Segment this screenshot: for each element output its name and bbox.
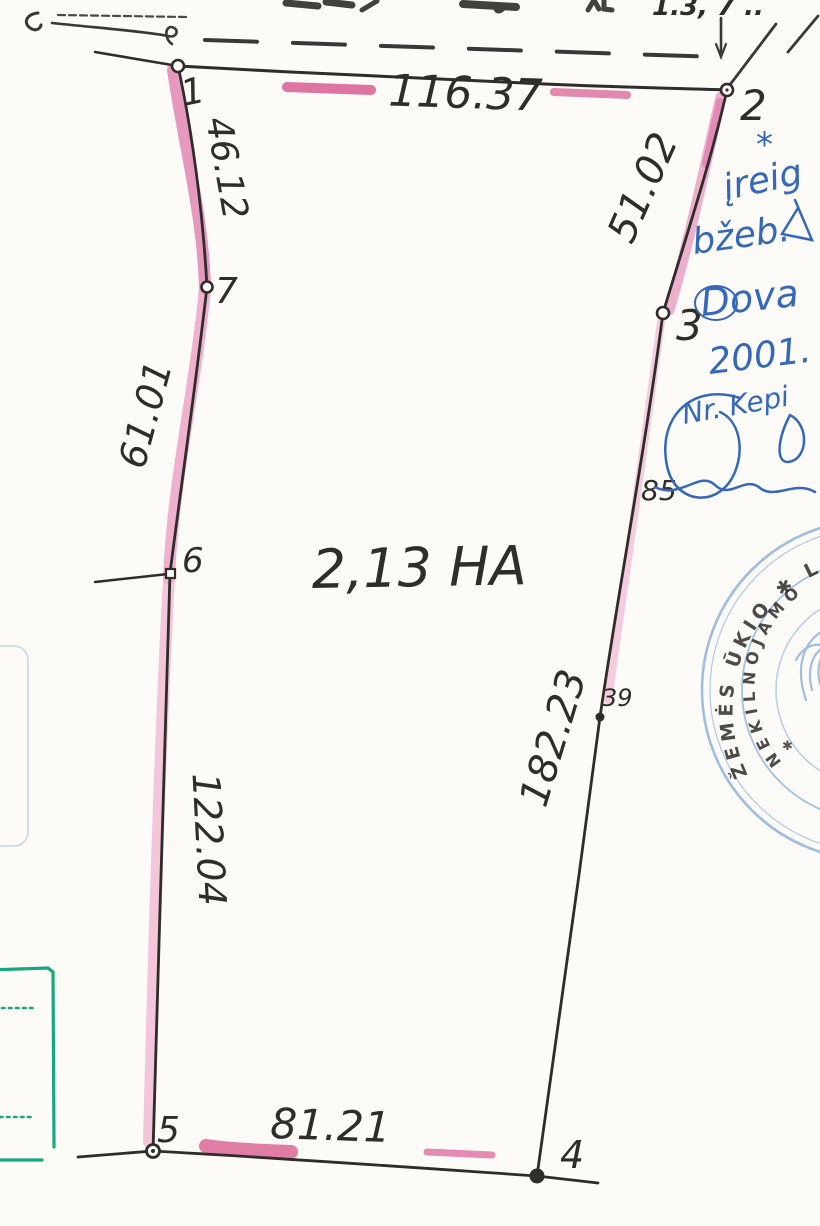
top-fragment-text: 1.3, 7 .. <box>652 0 764 22</box>
edge-6-7 <box>170 287 207 573</box>
vertex-1-marker <box>172 60 184 72</box>
note-line-3: Dova <box>698 271 800 325</box>
plan-drawing: ŽEMĖS ŪKIO ✱ LIETU NEKILNOJAMO ✱ 1.3, 7 … <box>0 0 820 1226</box>
tick-at-vertex-6 <box>95 574 168 582</box>
top-left-marks <box>26 13 186 44</box>
measurement-side-3-4: 182.23 <box>511 665 596 812</box>
vertex-3-marker <box>657 307 669 319</box>
area-label: 2,13 HA <box>311 534 527 601</box>
fragment-stroke-1 <box>286 3 318 6</box>
vertex-4-marker <box>530 1169 544 1183</box>
stamp-emblem-swirl-2 <box>810 644 820 690</box>
measurement-side-2-3: 51.02 <box>599 126 688 249</box>
point-39-label: 39 <box>602 684 633 712</box>
scanned-land-plan: ŽEMĖS ŪKIO ✱ LIETU NEKILNOJAMO ✱ 1.3, 7 … <box>0 0 820 1226</box>
hook-mark <box>26 13 41 30</box>
diagonal-with-loop <box>52 23 177 44</box>
signature-inner-loop <box>780 415 805 462</box>
pink-bottom-stroke <box>427 1152 492 1155</box>
pink-top-stroke-1 <box>287 87 371 90</box>
diagonal-ray-1 <box>729 24 776 86</box>
vertex-6-marker <box>166 569 175 578</box>
note-line-5: Nr. Kepi <box>679 380 791 431</box>
measurement-side-5-6: 122.04 <box>184 772 235 907</box>
note-line-2: bžeb. <box>690 209 793 263</box>
teal-marks <box>0 968 54 1160</box>
top-extension-line <box>95 52 178 66</box>
fragment-stroke-6 <box>588 0 599 10</box>
note-line-1: įreig <box>718 152 806 209</box>
stamp-emblem-swirl-1 <box>801 625 820 700</box>
note-line-4: 2001. <box>706 330 813 383</box>
fragment-stroke-7 <box>604 1 612 10</box>
vertex-3-label: 3 <box>676 301 703 350</box>
vertex-2-dot <box>725 88 728 91</box>
vertex-4-label: 4 <box>560 1133 584 1177</box>
vertex-5-label: 5 <box>157 1110 180 1151</box>
vertex-5-dot <box>151 1149 155 1153</box>
stamp-emblem <box>796 625 820 700</box>
measurement-side-1-2: 116.37 <box>388 65 544 121</box>
diagonal-ray-2 <box>788 16 818 52</box>
fragment-stroke-2 <box>326 2 352 5</box>
point-39-marker <box>596 713 605 722</box>
top-edge-fragments <box>286 0 612 11</box>
vertex-6-label: 6 <box>182 541 204 581</box>
stamp-star: ✱ <box>782 739 793 754</box>
fragment-stroke-4 <box>463 4 516 7</box>
fragment-stroke-3 <box>362 1 377 10</box>
teal-rect-outline <box>0 968 54 1147</box>
vertex-7-label: 7 <box>215 271 238 312</box>
measurement-side-6-7: 61.01 <box>110 356 181 472</box>
micro-text-line <box>58 15 186 17</box>
vertex-7-marker <box>202 282 213 293</box>
pink-top-stroke-2 <box>554 92 627 95</box>
measurement-side-7-1: 46.12 <box>197 114 255 223</box>
faint-rounded-rect <box>0 646 28 846</box>
vertex-labels: 1 2 3 4 5 6 7 85 39 <box>157 70 767 1177</box>
vertex-2-label: 2 <box>740 81 767 130</box>
dash-dot-line <box>205 40 718 57</box>
measurement-side-4-5: 81.21 <box>270 1099 392 1152</box>
